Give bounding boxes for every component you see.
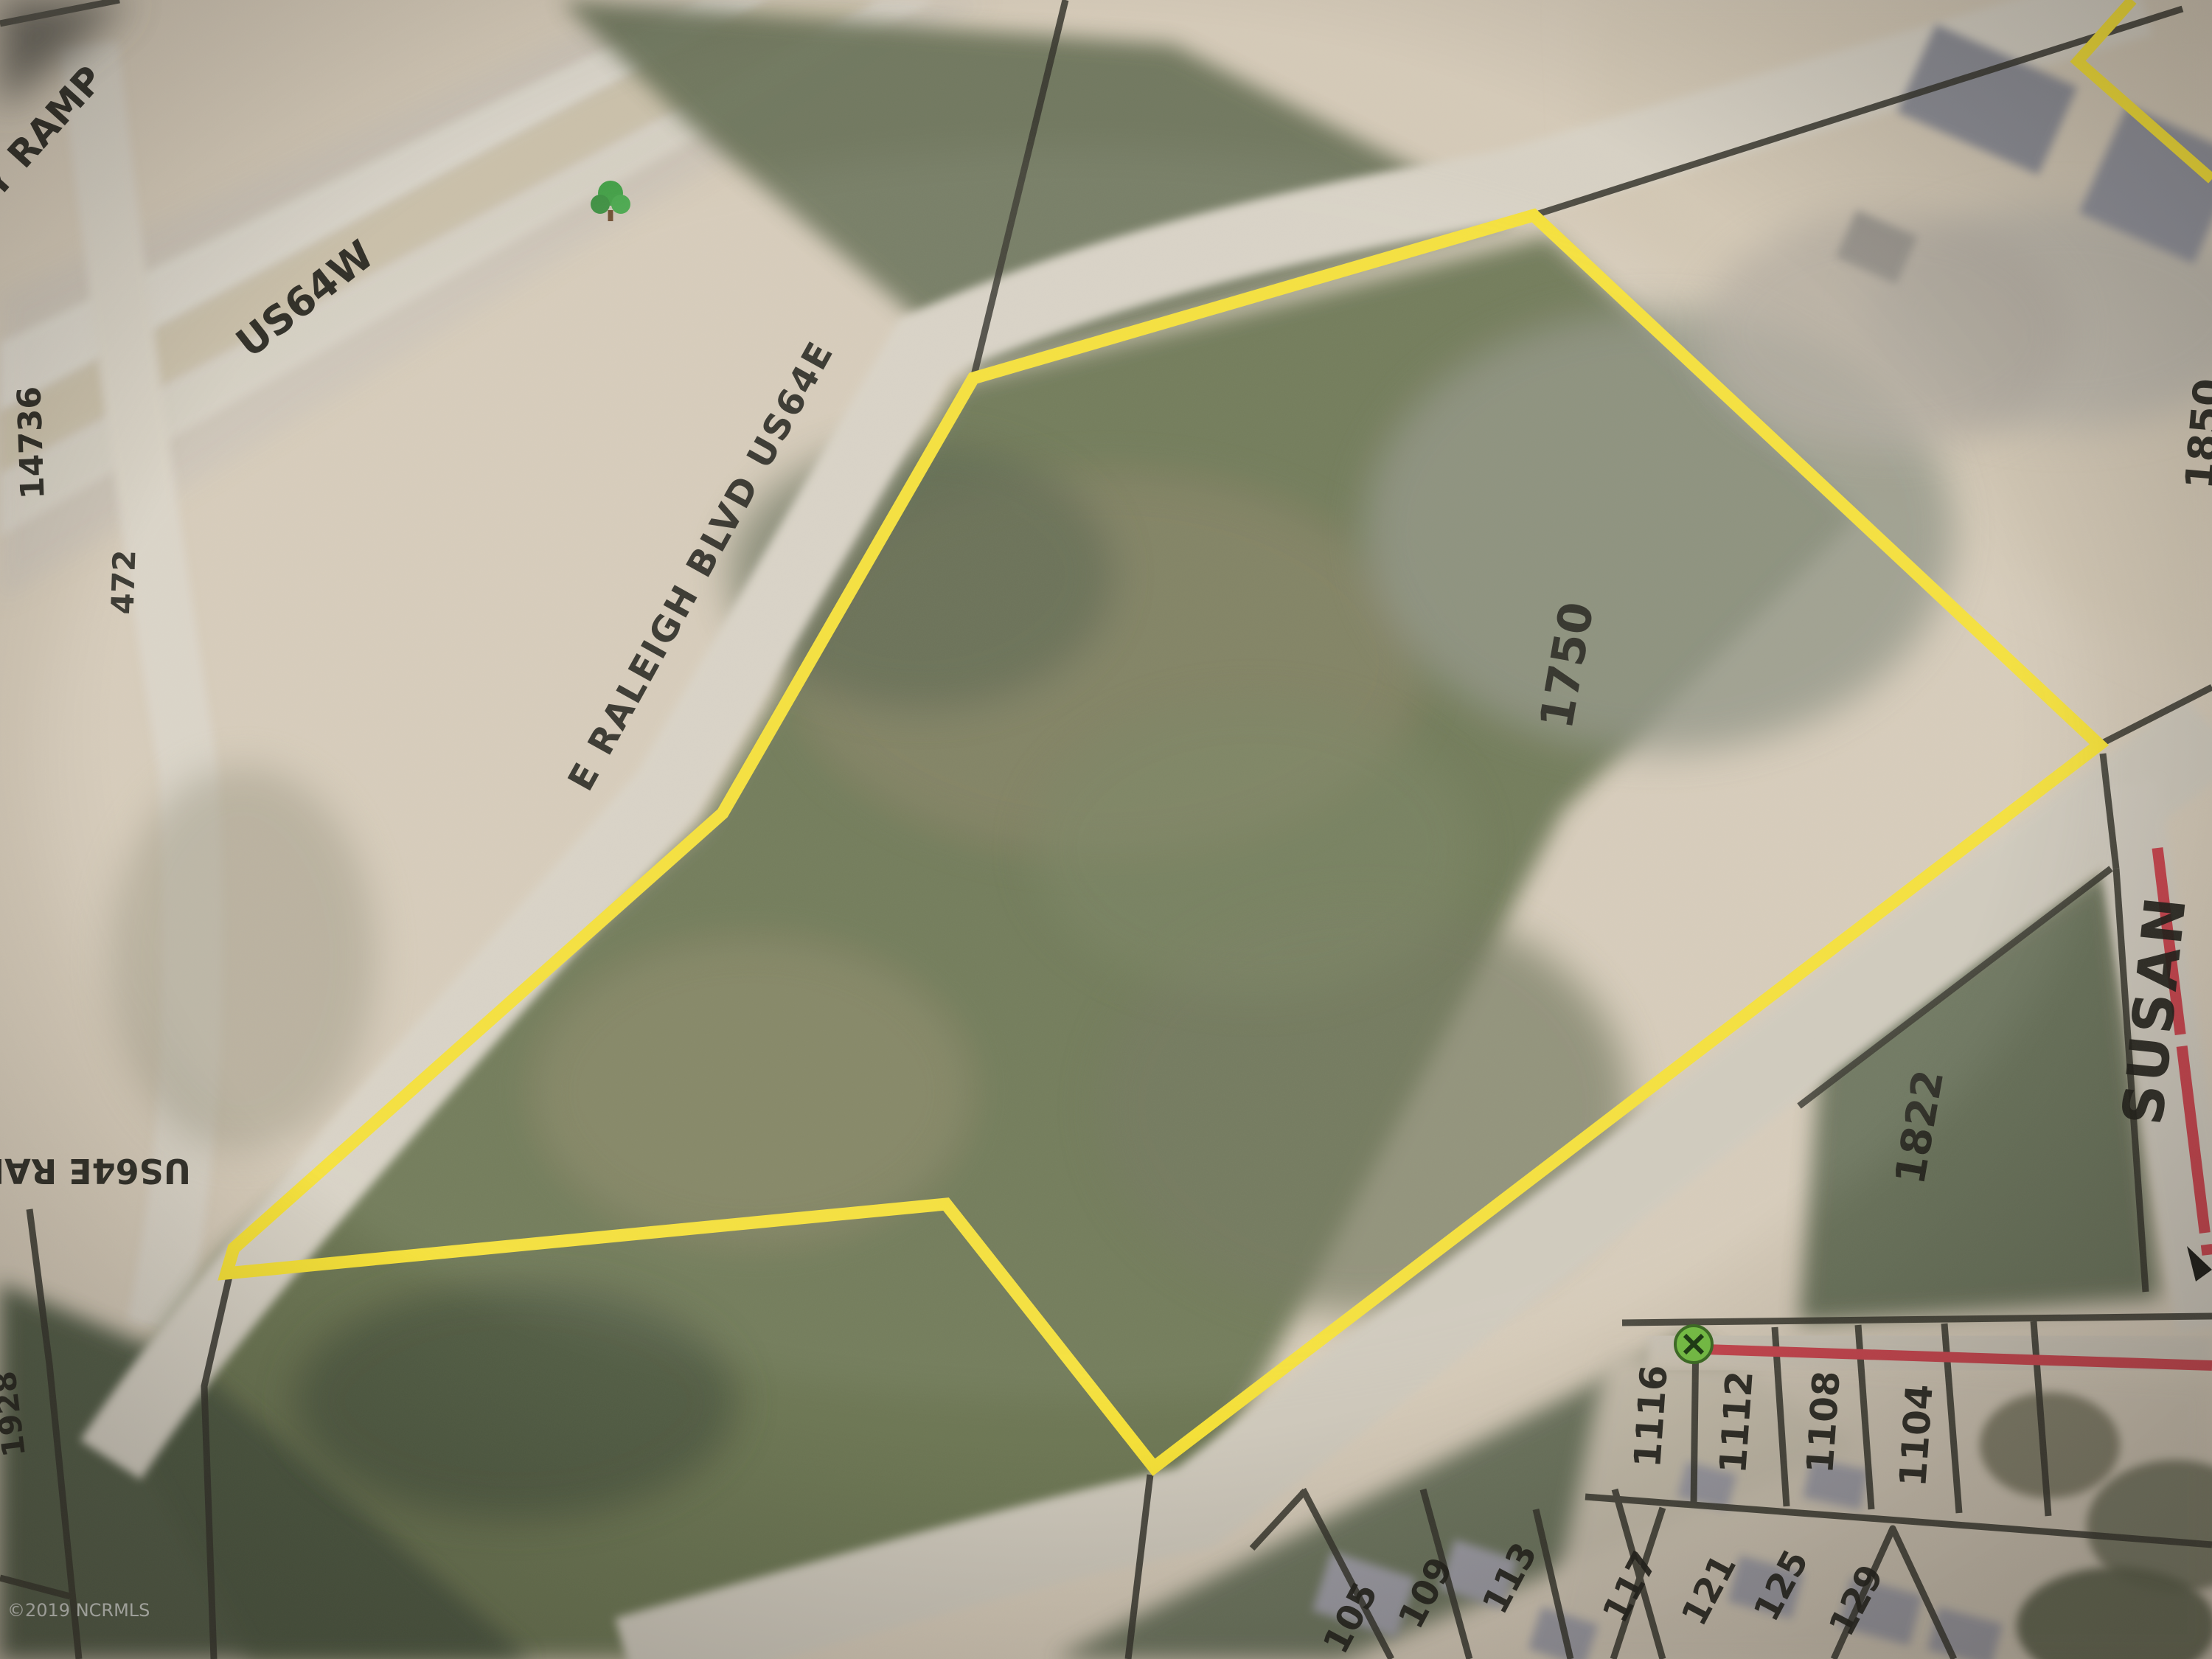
photo-vignette [0,0,2212,1659]
aerial-parcel-map-photo: Y RAMP US64W 14736 472 E RALEIGH BLVD US… [0,0,2212,1659]
